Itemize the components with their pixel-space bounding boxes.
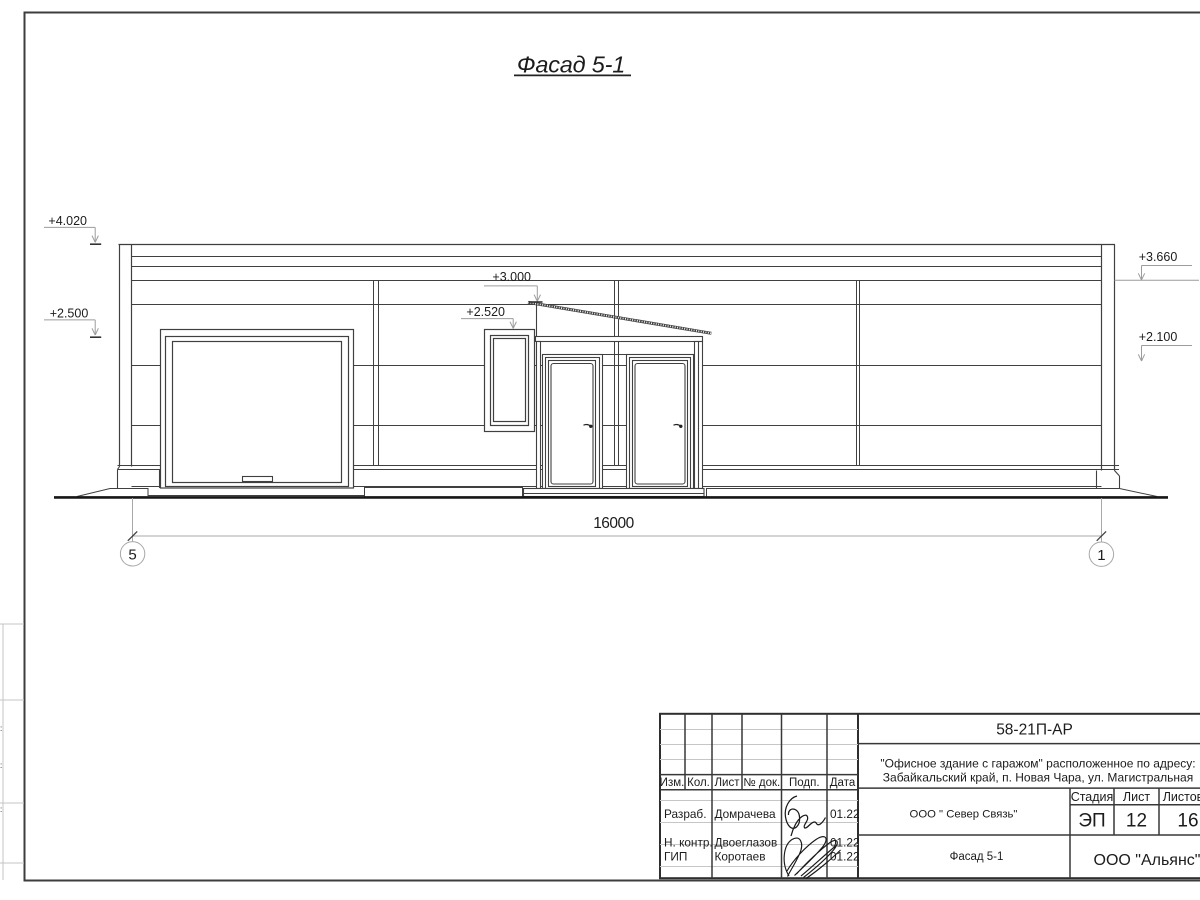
svg-text:"Офисное здание с гаражом" рас: "Офисное здание с гаражом" расположенное… (880, 757, 1195, 771)
svg-text:Фасад 5-1: Фасад 5-1 (950, 851, 1004, 863)
svg-text::: : (0, 724, 2, 733)
svg-text:Разраб.: Разраб. (664, 807, 706, 821)
svg-text:+2.520: +2.520 (466, 305, 505, 319)
svg-text:Двоеглазов: Двоеглазов (715, 836, 778, 850)
svg-text:+3.660: +3.660 (1139, 250, 1178, 264)
svg-text:ООО " Север Связь": ООО " Север Связь" (910, 809, 1018, 821)
svg-text:Домрачева: Домрачева (715, 807, 776, 821)
svg-text:Коротаев: Коротаев (715, 849, 766, 863)
svg-text:1: 1 (1097, 547, 1105, 564)
svg-text:Н. контр.: Н. контр. (664, 836, 713, 850)
svg-text:Стадия: Стадия (1071, 790, 1114, 804)
svg-text:Дата: Дата (830, 777, 856, 789)
svg-text::: : (0, 761, 2, 770)
svg-text:16000: 16000 (593, 515, 634, 532)
svg-text:ООО "Альянс": ООО "Альянс" (1094, 852, 1200, 869)
svg-text:Забайкальский край, п. Новая Ч: Забайкальский край, п. Новая Чара, ул. М… (883, 771, 1193, 785)
svg-text:Подп.: Подп. (789, 777, 820, 789)
svg-text:+2.100: +2.100 (1139, 330, 1178, 344)
svg-text:Лист: Лист (715, 777, 741, 789)
svg-text:Фасад 5-1: Фасад 5-1 (517, 52, 625, 78)
svg-text:12: 12 (1126, 811, 1147, 832)
svg-text:ГИП: ГИП (664, 849, 687, 863)
svg-text:Кол.: Кол. (687, 777, 710, 789)
svg-text:5: 5 (128, 547, 136, 564)
svg-text:Листов: Листов (1163, 790, 1200, 804)
svg-text:Лист: Лист (1123, 790, 1150, 804)
svg-text:58-21П-АР: 58-21П-АР (996, 722, 1073, 739)
svg-text:+2.500: +2.500 (50, 307, 89, 321)
svg-text:16: 16 (1177, 811, 1198, 832)
svg-text::: : (0, 805, 2, 814)
svg-text:№ док.: № док. (743, 777, 780, 789)
svg-text:ЭП: ЭП (1078, 811, 1105, 832)
svg-text:+4.020: +4.020 (48, 214, 87, 228)
svg-text:Изм.: Изм. (660, 777, 685, 789)
svg-text:01.22: 01.22 (830, 807, 860, 821)
svg-text:+3.000: +3.000 (492, 270, 531, 284)
